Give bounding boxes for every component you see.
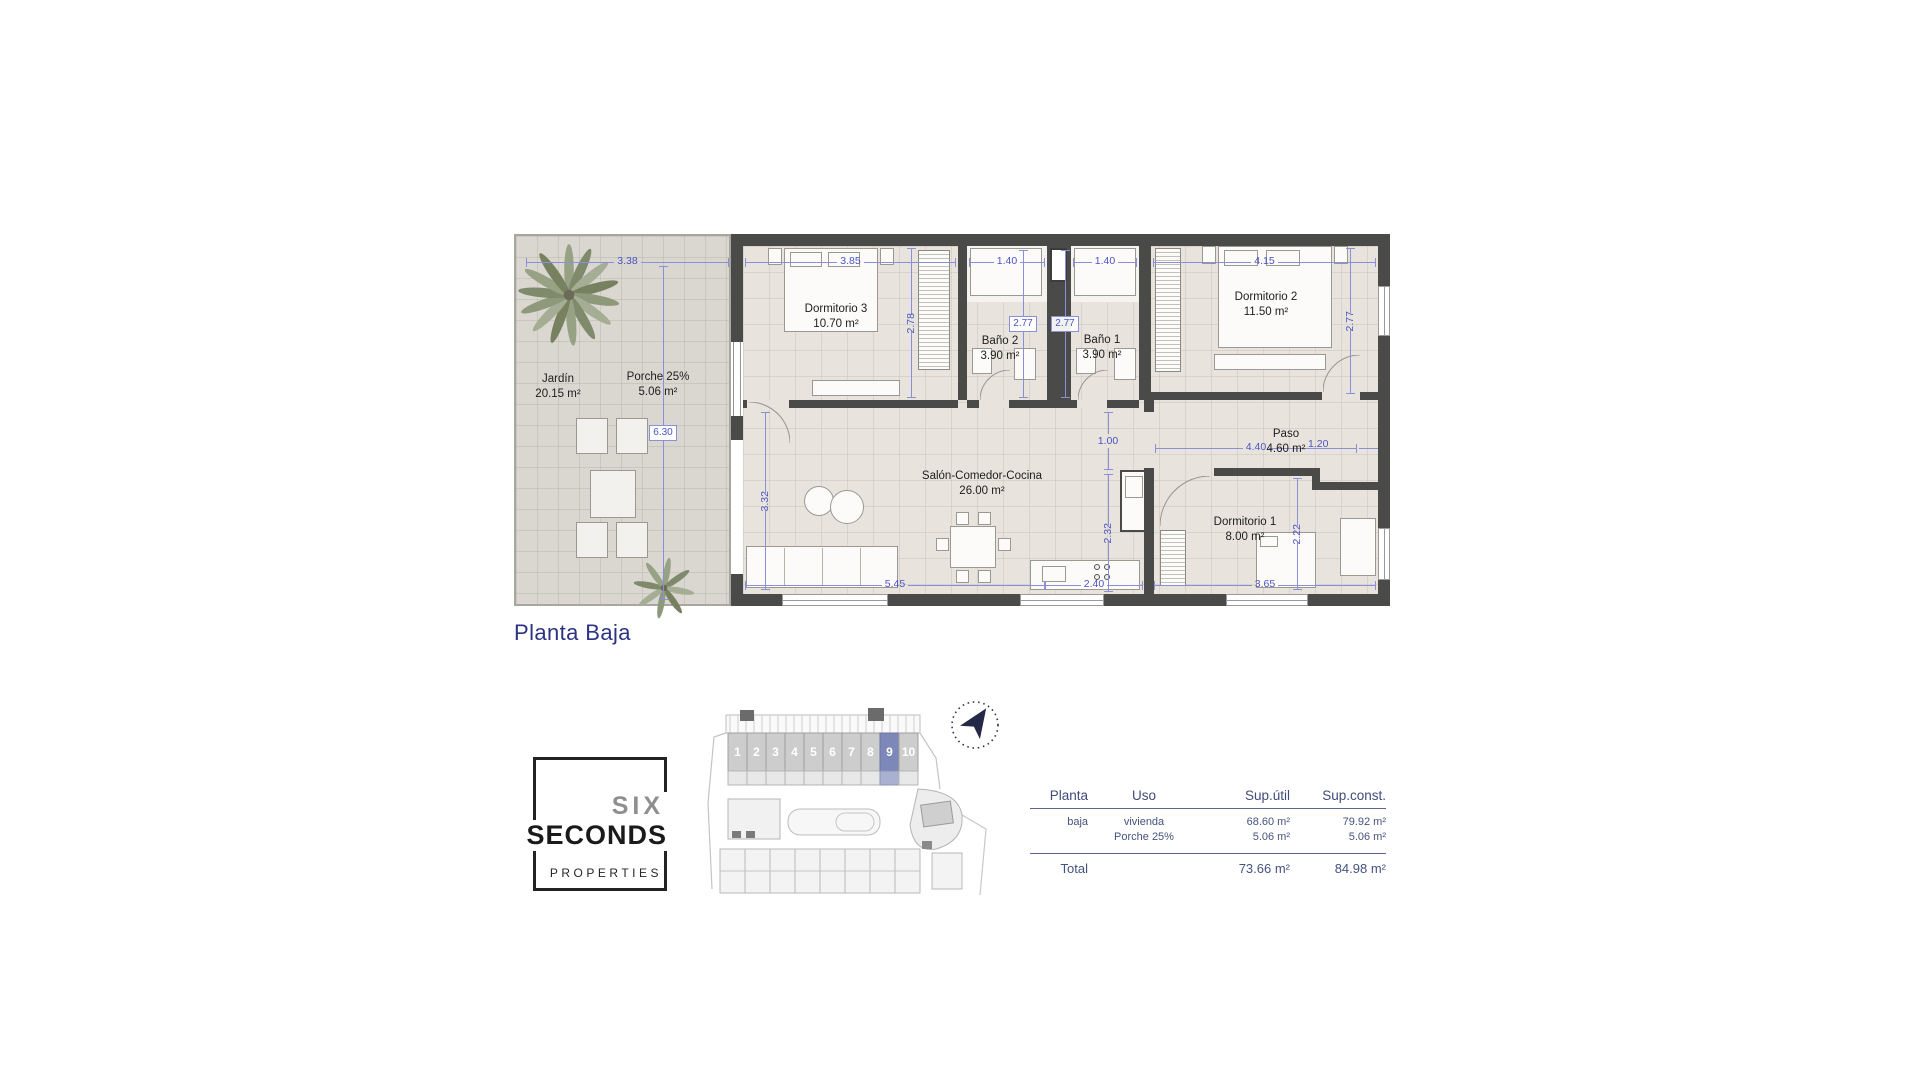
dim-paso-opening: 1.00 [1101, 412, 1115, 470]
hob-burner [1094, 564, 1100, 570]
svg-text:8: 8 [867, 745, 874, 759]
door-arc-bath1 [1078, 370, 1108, 400]
terrace-chair [576, 418, 608, 454]
dim-dorm3-width: 3.85 [745, 256, 956, 268]
dim-bath2-width: 1.40 [969, 256, 1045, 268]
round-table [804, 486, 834, 516]
dim-dorm1-width: 3.65 [1154, 579, 1376, 591]
room-label-bano2: Baño 23.90 m² [950, 334, 1050, 364]
window-kitchen [1020, 594, 1104, 606]
table-header-row: Planta Uso Sup.útil Sup.const. [1030, 788, 1386, 809]
dim-terrace-width: 3.38 [526, 256, 729, 268]
wall-left-upper [731, 246, 743, 342]
room-label-dormitorio1: Dormitorio 18.00 m² [1175, 515, 1315, 545]
dim-salon-height: 3.32 [758, 412, 772, 590]
svg-text:6: 6 [829, 745, 836, 759]
table-row: baja vivienda 68.60 m² 79.92 m² [1030, 815, 1386, 830]
dim-line-dorm2-door [1359, 448, 1378, 449]
room-label-dormitorio3: Dormitorio 310.70 m² [766, 302, 906, 332]
svg-text:3: 3 [772, 745, 779, 759]
dining-table [950, 526, 996, 568]
room-label-jardin: Jardín20.15 m² [520, 372, 596, 402]
logo-word-six: SIX [603, 792, 669, 821]
svg-text:10: 10 [902, 745, 916, 759]
wall-paso-dorm1-right [1320, 482, 1378, 490]
table-total-row: Total 73.66 m² 84.98 m² [1030, 853, 1386, 876]
door-gap-bath1 [1077, 400, 1107, 408]
brand-logo: SIX SECONDS PROPERTIES [533, 757, 667, 891]
logo-word-seconds: SECONDS [517, 820, 671, 851]
room-label-paso: Paso4.60 m² [1236, 427, 1336, 457]
wall-salon-paso-upper [1144, 392, 1154, 412]
chair [998, 538, 1011, 551]
floor-plan: Jardín20.15 m² Porche 25%5.06 m² Dormito… [514, 230, 1390, 610]
wall-under-dorm2 [1151, 392, 1322, 400]
dim-dorm3-height: 2.78 [904, 248, 918, 398]
plan-title: Planta Baja [514, 620, 631, 646]
svg-text:1: 1 [734, 745, 741, 759]
logo-word-properties: PROPERTIES [550, 866, 662, 880]
table-row: Porche 25% 5.06 m² 5.06 m² [1030, 830, 1386, 845]
door-arc-bath2 [980, 370, 1010, 400]
window-salon [782, 594, 888, 606]
svg-text:7: 7 [848, 745, 855, 759]
dim-bath1-height: 2.77 [1058, 250, 1072, 398]
unit9-structure [921, 801, 954, 827]
roof-strip [726, 715, 920, 733]
wall-left-lower [731, 574, 743, 594]
bottom-unit-row [720, 849, 962, 893]
dim-dorm2-height: 2.77 [1343, 248, 1357, 394]
dresser [1214, 354, 1326, 370]
room-label-porche: Porche 25%5.06 m² [608, 370, 708, 400]
wall-paso-dorm1-step [1312, 468, 1320, 490]
site-detail [922, 841, 932, 849]
svg-text:4: 4 [791, 745, 798, 759]
dim-kitchen-height: 2.32 [1101, 474, 1115, 592]
terrace-table [590, 470, 636, 518]
header-sup-util: Sup.útil [1200, 788, 1290, 803]
dim-bath2-height: 2.77 [1016, 250, 1030, 398]
unit-row [728, 733, 918, 785]
chair [936, 538, 949, 551]
roof-structure [740, 710, 754, 721]
window-dorm1 [1226, 594, 1308, 606]
surfaces-table: Planta Uso Sup.útil Sup.const. baja vivi… [1030, 788, 1386, 876]
wall-top [731, 234, 1390, 246]
window-dorm2 [1378, 286, 1390, 336]
wall-left-stub [731, 416, 743, 440]
room-label-salon: Salón-Comedor-Cocina26.00 m² [892, 469, 1072, 499]
wall-dorm3-bath2 [958, 246, 967, 400]
wall-under-dorm2-stub [1360, 392, 1378, 400]
wall-bath1-dorm2 [1139, 246, 1151, 400]
dresser [812, 380, 900, 396]
dim-salon-width: 5.45 [745, 579, 1045, 591]
svg-text:5: 5 [810, 745, 817, 759]
header-sup-const: Sup.const. [1290, 788, 1386, 803]
compass-north-icon [948, 698, 1002, 752]
terrace-sliding-door [733, 342, 741, 416]
svg-text:2: 2 [753, 745, 760, 759]
wardrobe-dormitorio3 [918, 250, 950, 370]
floorplan-sheet: { "floor_plan": { "title": "Planta Baja"… [0, 0, 1920, 1080]
window-dorm1-side [1378, 528, 1390, 580]
chair [978, 512, 991, 525]
chair [956, 512, 969, 525]
header-uso: Uso [1088, 788, 1200, 803]
dim-bath1-width: 1.40 [1073, 256, 1137, 268]
door-gap-bath2 [979, 400, 1009, 408]
roof-structure [868, 708, 884, 721]
wall-salon-dorm1 [1144, 468, 1154, 594]
header-planta: Planta [1030, 788, 1088, 803]
svg-text:9: 9 [886, 745, 893, 759]
closet-dormitorio1 [1340, 518, 1376, 576]
terrace-chair [616, 418, 648, 454]
terrace-chair [576, 522, 608, 558]
total-label: Total [1030, 861, 1088, 876]
room-label-bano1: Baño 13.90 m² [1052, 333, 1152, 363]
oven [1125, 476, 1143, 498]
wall-paso-dorm1 [1214, 468, 1312, 476]
room-label-dormitorio2: Dormitorio 211.50 m² [1196, 290, 1336, 320]
round-table [830, 490, 864, 524]
dim-terrace-height: 6.30 [656, 266, 670, 600]
dim-kitchen-width: 2.40 [1045, 579, 1143, 591]
terrace-chair [616, 522, 648, 558]
